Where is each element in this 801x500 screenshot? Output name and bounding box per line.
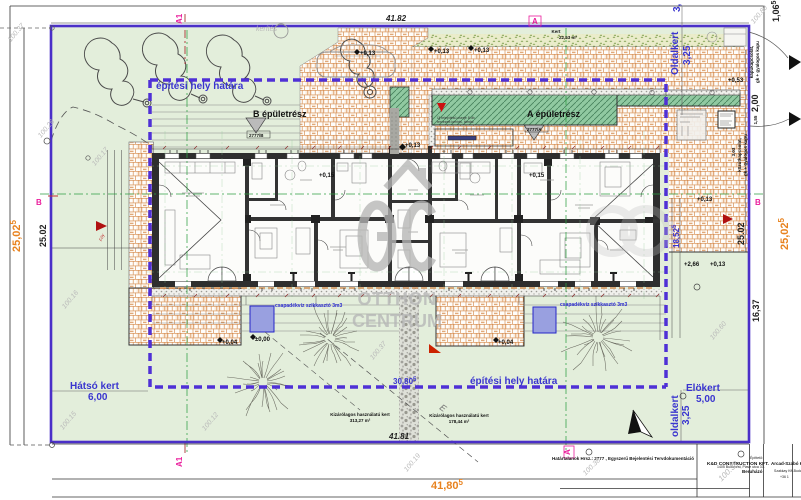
svg-text:A: A xyxy=(532,17,538,26)
svg-text:+0,15: +0,15 xyxy=(529,173,545,179)
svg-text:41.82: 41.82 xyxy=(385,14,407,23)
svg-text:3,25: 3,25 xyxy=(681,405,692,425)
svg-text:178,44 m²: 178,44 m² xyxy=(449,419,470,424)
svg-text:22,53 m²: 22,53 m² xyxy=(559,35,578,40)
svg-text:építési hely határa: építési hely határa xyxy=(470,376,558,387)
svg-text:Építtető:: Építtető: xyxy=(750,455,763,460)
svg-text:csapadékvíz szikkasztó 3m3: csapadékvíz szikkasztó 3m3 xyxy=(275,303,342,309)
svg-text:Kizárólagos használatú kert: Kizárólagos használatú kert xyxy=(429,413,489,418)
svg-text:Oldalkert: Oldalkert xyxy=(670,31,681,75)
svg-text:A1: A1 xyxy=(175,13,184,24)
svg-text:±0,00: ±0,00 xyxy=(255,337,271,343)
svg-text:16,37: 16,37 xyxy=(751,299,761,322)
svg-text:B: B xyxy=(36,198,42,207)
svg-text:Kizárólagos használatú kert: Kizárólagos használatú kert xyxy=(330,412,390,417)
svg-text:+0,15: +0,15 xyxy=(319,173,335,179)
svg-text:25.02: 25.02 xyxy=(38,224,48,247)
svg-text:Hátsó kert: Hátsó kert xyxy=(70,381,120,392)
svg-text:41.81: 41.81 xyxy=(388,432,410,441)
svg-text:+0,04: +0,04 xyxy=(222,340,238,346)
svg-text:+0,13: +0,13 xyxy=(434,49,450,55)
svg-text:Beruházó: Beruházó xyxy=(742,469,763,474)
svg-text:A épületrész: A épületrész xyxy=(527,109,581,119)
svg-text:oldalkert: oldalkert xyxy=(670,395,681,437)
svg-text:3,25: 3,25 xyxy=(682,45,693,65)
svg-text:B épületrész: B épületrész xyxy=(253,109,307,119)
svg-text:gk + gyalogos kapu: gk + gyalogos kapu xyxy=(755,41,760,83)
svg-text:+0,13: +0,13 xyxy=(710,262,726,268)
svg-text:2777/A: 2777/A xyxy=(527,127,542,132)
svg-text:OTTHON: OTTHON xyxy=(358,289,437,309)
svg-text:kapukapcsolat,: kapukapcsolat, xyxy=(749,46,754,79)
svg-text:313,27 m²: 313,27 m² xyxy=(350,418,371,423)
svg-text:2,00: 2,00 xyxy=(750,94,760,112)
svg-text:+36 1: +36 1 xyxy=(780,475,789,479)
svg-text:tervezett kerítés, támfal: tervezett kerítés, támfal xyxy=(437,120,474,124)
svg-text:csapadékvíz szikkasztó 3m3: csapadékvíz szikkasztó 3m3 xyxy=(560,302,627,308)
svg-text:25.02: 25.02 xyxy=(736,222,746,245)
svg-text:közútkapcsolat,: közútkapcsolat, xyxy=(737,138,742,172)
svg-text:Elökert: Elökert xyxy=(686,383,721,394)
svg-text:3,03: 3,03 xyxy=(731,147,736,156)
svg-text:+0,13: +0,13 xyxy=(474,48,490,54)
svg-text:gk + gyalogos kapu: gk + gyalogos kapu xyxy=(743,134,748,176)
svg-text:+2,66: +2,66 xyxy=(684,262,700,268)
svg-text:+0,13: +0,13 xyxy=(697,197,713,203)
svg-text:CENTRUM: CENTRUM xyxy=(352,311,442,331)
svg-text:+0,13: +0,13 xyxy=(360,51,376,57)
svg-text:+0,53: +0,53 xyxy=(728,78,744,84)
svg-text:5,00: 5,00 xyxy=(696,394,716,405)
svg-text:Arcad-Szabó K: Arcad-Szabó K xyxy=(771,461,801,466)
svg-text:+0,13: +0,13 xyxy=(405,143,421,149)
svg-text:3,: 3, xyxy=(672,3,683,12)
svg-text:Szakkay Kft-Budapest: Szakkay Kft-Budapest xyxy=(774,469,801,473)
svg-text:+0,04: +0,04 xyxy=(498,340,514,346)
svg-text:A1: A1 xyxy=(175,456,184,467)
svg-text:építési hely határa: építési hely határa xyxy=(156,81,244,92)
svg-text:2777/B: 2777/B xyxy=(249,133,264,138)
svg-text:1,55: 1,55 xyxy=(753,115,758,124)
svg-text:B: B xyxy=(755,198,761,207)
svg-text:Határtalanok Hrsz.: 2777 , Egy: Határtalanok Hrsz.: 2777 , Egyszerű Beje… xyxy=(552,456,694,461)
svg-text:Kert: Kert xyxy=(551,29,561,34)
svg-text:6,00: 6,00 xyxy=(88,392,108,403)
